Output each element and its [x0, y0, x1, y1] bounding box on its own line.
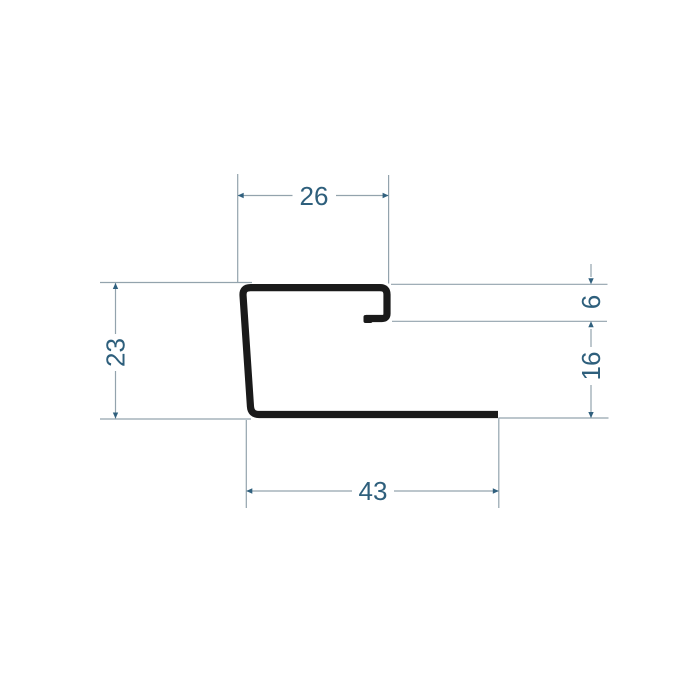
svg-text:43: 43 [359, 476, 388, 506]
svg-text:23: 23 [101, 338, 131, 367]
svg-text:6: 6 [576, 295, 606, 309]
svg-text:26: 26 [300, 181, 329, 211]
svg-text:16: 16 [576, 352, 606, 381]
